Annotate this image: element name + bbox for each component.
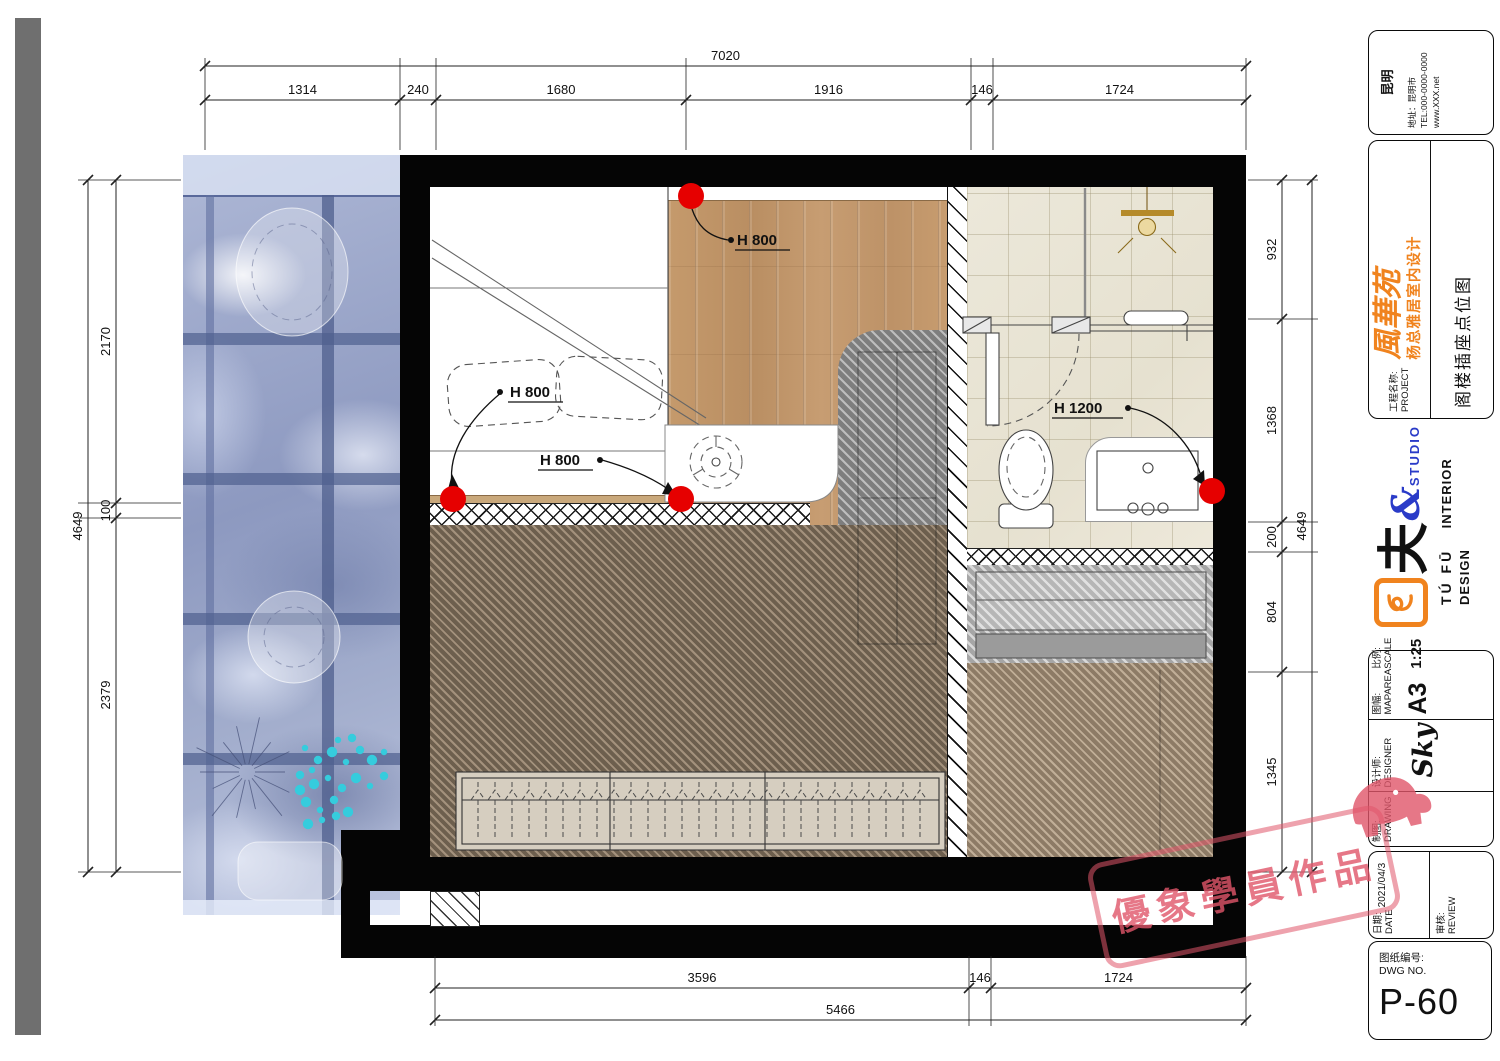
svg-text:2379: 2379 (98, 681, 113, 710)
svg-text:1314: 1314 (288, 82, 317, 97)
svg-text:1345: 1345 (1264, 758, 1279, 787)
svg-text:1724: 1724 (1104, 970, 1133, 985)
svg-text:932: 932 (1264, 239, 1279, 261)
socket-point (678, 183, 704, 209)
svg-text:3596: 3596 (688, 970, 717, 985)
socket-height-label: H 800 (540, 452, 580, 469)
svg-text:4649: 4649 (70, 512, 85, 541)
svg-text:1724: 1724 (1105, 82, 1134, 97)
svg-text:240: 240 (407, 82, 429, 97)
svg-text:146: 146 (971, 82, 993, 97)
socket-height-label: H 800 (737, 232, 777, 249)
svg-text:2170: 2170 (98, 327, 113, 356)
niche-group (665, 425, 838, 502)
svg-text:146: 146 (969, 970, 991, 985)
svg-text:1680: 1680 (547, 82, 576, 97)
socket-point (1199, 478, 1225, 504)
socket-point (440, 486, 466, 512)
bathroom-group (963, 187, 1213, 528)
svg-text:200: 200 (1264, 526, 1279, 548)
socket-height-label: H 800 (510, 384, 550, 401)
wardrobe (456, 772, 945, 850)
svg-text:7020: 7020 (711, 48, 740, 63)
skylight-decor (197, 208, 389, 900)
svg-text:5466: 5466 (826, 1002, 855, 1017)
svg-text:804: 804 (1264, 601, 1279, 623)
sloped-zone-lines (858, 352, 936, 644)
socket-point (668, 486, 694, 512)
svg-text:1916: 1916 (814, 82, 843, 97)
floorplan-sheet: 7020131424016801916146172435961461724546… (0, 0, 1500, 1061)
socket-height-label: H 1200 (1054, 400, 1102, 417)
svg-text:1368: 1368 (1264, 406, 1279, 435)
bath-cabinet-lines (976, 572, 1206, 850)
svg-text:4649: 4649 (1294, 512, 1309, 541)
